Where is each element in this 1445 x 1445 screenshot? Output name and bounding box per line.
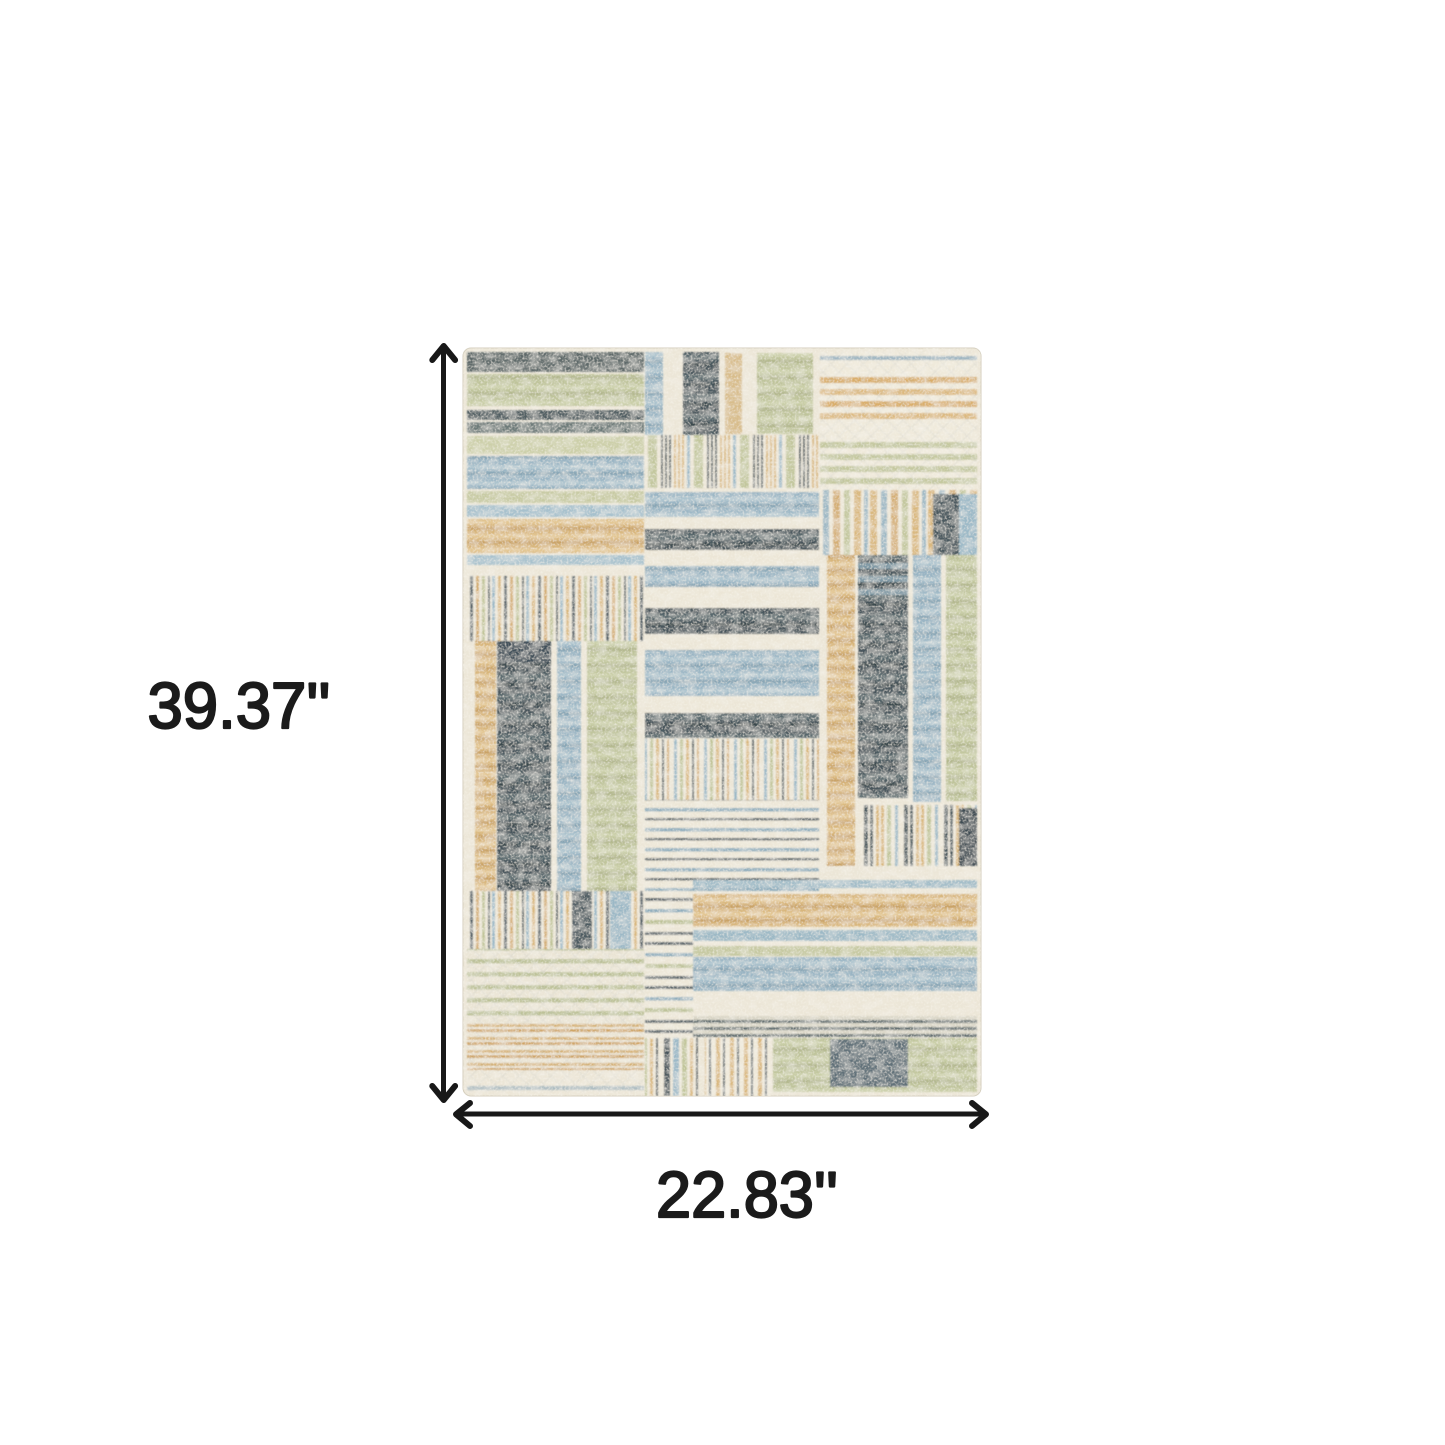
- svg-text:39.37'': 39.37'': [148, 669, 331, 742]
- svg-text:22.83'': 22.83'': [656, 1158, 838, 1231]
